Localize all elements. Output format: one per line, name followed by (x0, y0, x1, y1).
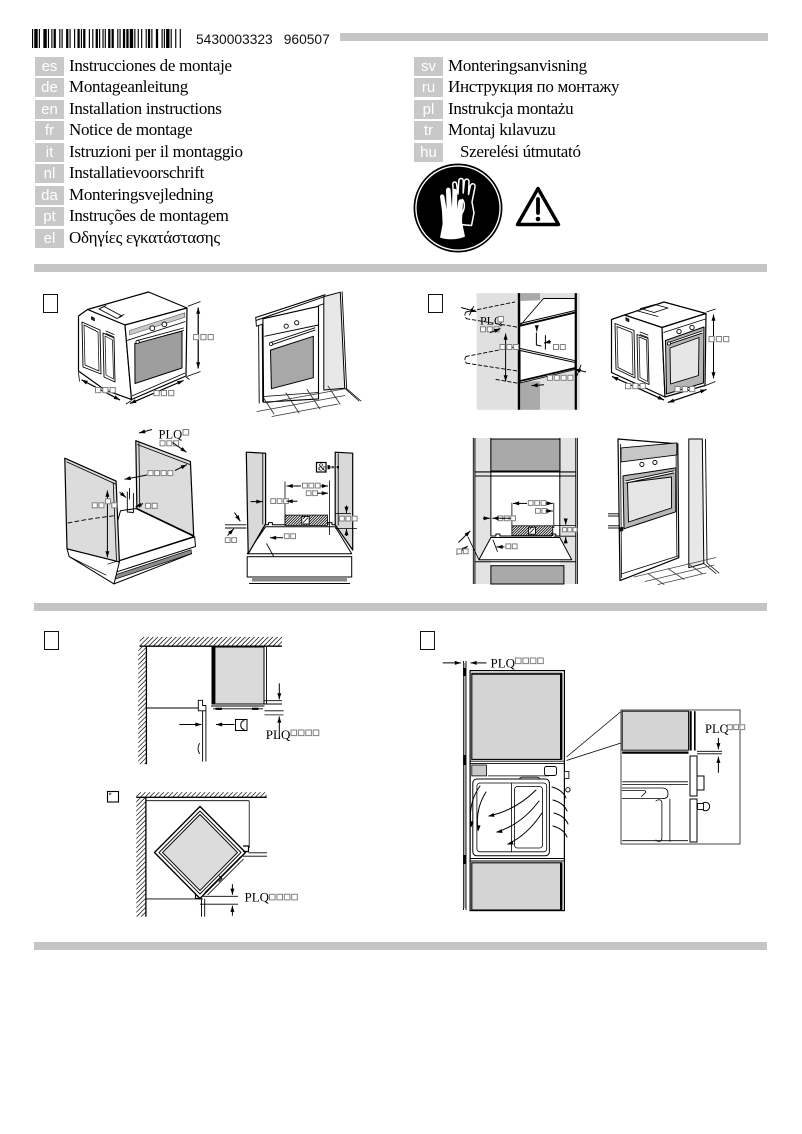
svg-text:PLQ: PLQ (245, 890, 270, 905)
svg-text:PLQ: PLQ (159, 428, 183, 442)
svg-text:PLQ: PLQ (705, 722, 729, 736)
svg-text:&: & (318, 463, 326, 474)
svg-text:PLQ: PLQ (266, 727, 291, 742)
svg-text:PLQ: PLQ (491, 655, 516, 670)
